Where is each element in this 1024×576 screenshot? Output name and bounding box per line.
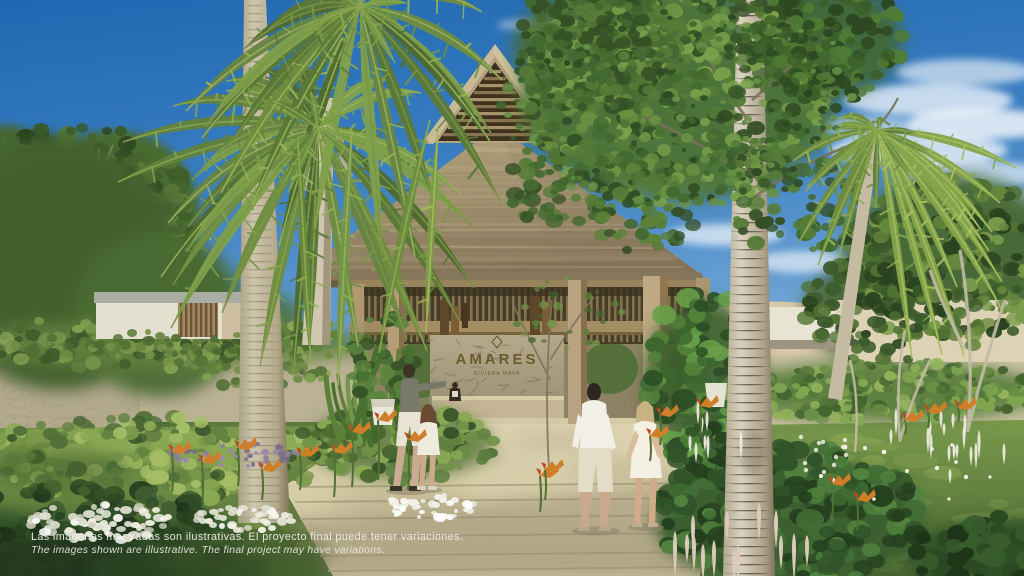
svg-text:RIVIERA MAYA: RIVIERA MAYA: [474, 371, 521, 377]
svg-text:AMARES: AMARES: [455, 351, 538, 368]
svg-text:Las imágenes mostradas son ilu: Las imágenes mostradas son ilustrativas.…: [31, 531, 463, 543]
svg-text:The images shown are illustrat: The images shown are illustrative. The f…: [31, 545, 385, 556]
